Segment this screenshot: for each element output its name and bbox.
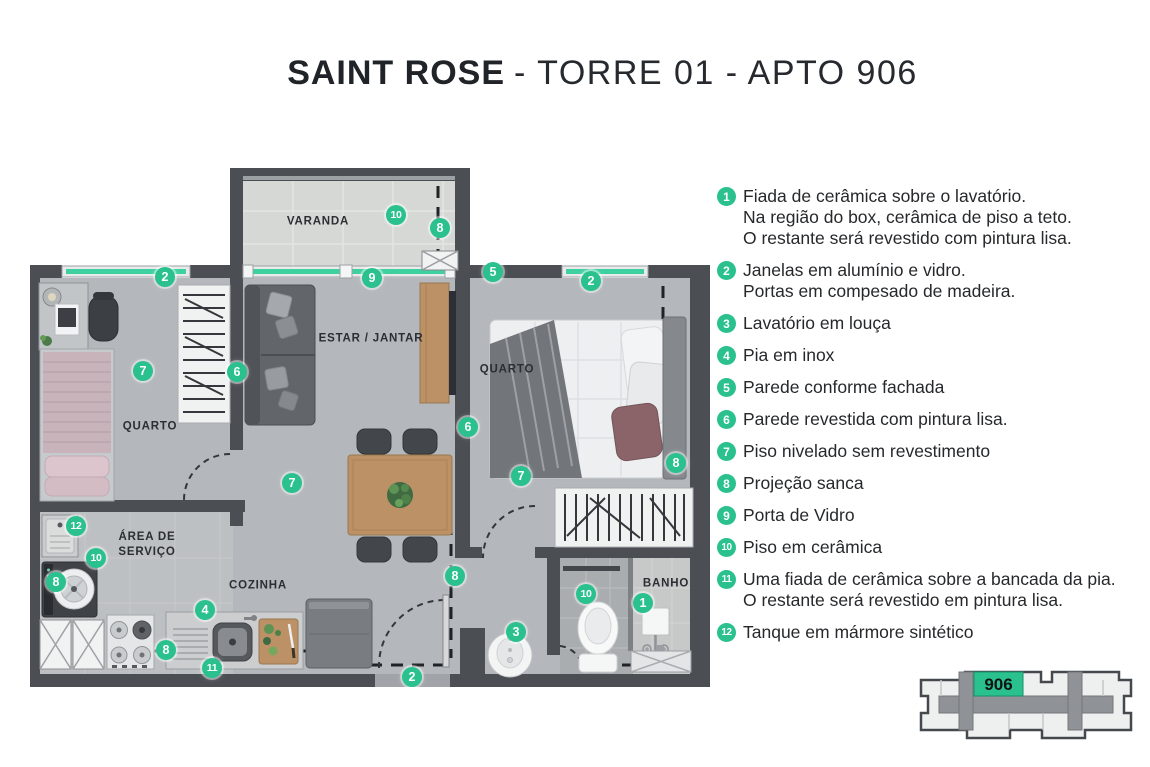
keyplan-drawing: 906 [915,664,1137,746]
desk-chair [89,292,118,341]
legend-badge: 5 [717,378,736,397]
plan-marker-10: 10 [386,205,406,225]
room-label: ESTAR / JANTAR [319,332,424,347]
legend-text: Porta de Vidro [743,505,855,526]
legend-badge: 7 [717,442,736,461]
plan-marker-10: 10 [576,584,596,604]
plan-marker-5: 5 [483,262,503,282]
floor-plan: VARANDAQUARTOESTAR / JANTARQUARTOÁREA DE… [30,168,710,703]
page: { "title": { "brand": "SAINT ROSE", "res… [0,0,1150,767]
plan-marker-4: 4 [195,600,215,620]
plan-marker-8: 8 [156,640,176,660]
room-label: QUARTO [480,363,534,378]
tv-panel [420,283,456,403]
kitchen-counter [166,612,303,669]
plan-marker-6: 6 [227,362,247,382]
legend-item-12: 12Tanque em mármore sintético [717,622,1147,643]
unit-number: 906 [984,675,1012,694]
legend-text: Lavatório em louça [743,313,891,334]
room-label: VARANDA [287,215,349,230]
plan-marker-2: 2 [581,271,601,291]
legend-item-7: 7Piso nivelado sem revestimento [717,441,1147,462]
legend-text: Parede conforme fachada [743,377,944,398]
ac-unit [422,251,458,270]
plan-marker-10: 10 [86,548,106,568]
towel-bar [563,566,620,571]
plan-marker-11: 11 [202,658,222,678]
legend-item-9: 9Porta de Vidro [717,505,1147,526]
legend-badge: 4 [717,346,736,365]
plan-marker-8: 8 [46,572,66,592]
plan-marker-8: 8 [430,218,450,238]
plan-marker-8: 8 [445,566,465,586]
plan-marker-7: 7 [282,473,302,493]
toilet [578,602,618,672]
stove [107,615,154,669]
floor-plan-drawing [30,168,710,703]
plan-marker-12: 12 [66,516,86,536]
wardrobe-left [178,285,230,423]
room-label: COZINHA [229,579,287,594]
legend-text: Tanque em mármore sintético [743,622,974,643]
legend-item-11: 11Uma fiada de cerâmica sobre a bancada … [717,569,1147,611]
plan-marker-3: 3 [506,622,526,642]
plan-marker-9: 9 [362,268,382,288]
plan-marker-2: 2 [155,267,175,287]
legend-item-2: 2Janelas em alumínio e vidro.Portas em c… [717,260,1147,302]
legend-badge: 9 [717,506,736,525]
legend-text: Pia em inox [743,345,834,366]
sofa [245,285,315,425]
title-rest: - TORRE 01 - APTO 906 [514,54,918,92]
legend-text: Projeção sanca [743,473,864,494]
legend-badge: 1 [717,187,736,206]
legend-text: Janelas em alumínio e vidro.Portas em co… [743,260,1015,302]
legend-text: Fiada de cerâmica sobre o lavatório.Na r… [743,186,1072,249]
plan-marker-1: 1 [633,593,653,613]
bed-right [490,317,686,479]
legend-item-5: 5Parede conforme fachada [717,377,1147,398]
legend-badge: 3 [717,314,736,333]
legend-item-10: 10Piso em cerâmica [717,537,1147,558]
wardrobe-right [555,488,693,547]
plan-marker-2: 2 [402,667,422,687]
legend-item-4: 4Pia em inox [717,345,1147,366]
plan-marker-6: 6 [458,417,478,437]
legend-item-6: 6Parede revestida com pintura lisa. [717,409,1147,430]
legend-badge: 12 [717,623,736,642]
fridge [306,599,372,668]
room-label: ÁREA DE SERVIÇO [118,530,175,560]
room-label: BANHO [643,577,689,592]
plan-marker-8: 8 [666,453,686,473]
legend-text: Uma fiada de cerâmica sobre a bancada da… [743,569,1116,611]
legend-list: 1Fiada de cerâmica sobre o lavatório.Na … [717,186,1147,654]
page-title: SAINT ROSE- TORRE 01 - APTO 906 [0,54,1150,93]
legend-badge: 6 [717,410,736,429]
desk [39,283,88,350]
legend-badge: 10 [717,538,736,557]
legend-badge: 2 [717,261,736,280]
room-label: QUARTO [123,420,177,435]
legend-text: Piso nivelado sem revestimento [743,441,990,462]
bed-left [40,349,114,501]
legend-item-1: 1Fiada de cerâmica sobre o lavatório.Na … [717,186,1147,249]
entry-door-leaf [443,595,449,667]
keyplan: 906 [915,664,1137,746]
legend-text: Parede revestida com pintura lisa. [743,409,1008,430]
legend-item-8: 8Projeção sanca [717,473,1147,494]
plan-marker-7: 7 [511,466,531,486]
title-brand: SAINT ROSE [287,54,505,92]
legend-item-3: 3Lavatório em louça [717,313,1147,334]
legend-badge: 11 [717,570,736,589]
legend-text: Piso em cerâmica [743,537,882,558]
plan-marker-7: 7 [133,361,153,381]
legend-badge: 8 [717,474,736,493]
